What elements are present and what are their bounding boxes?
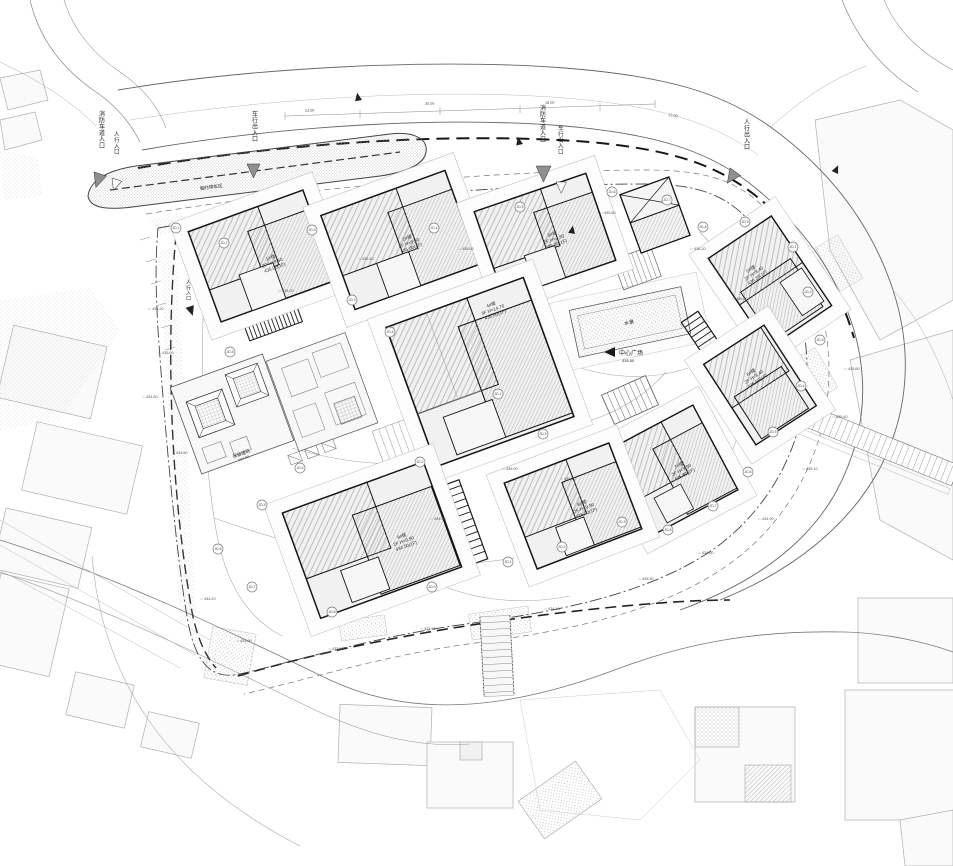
spot-elevation: 434.90	[762, 517, 774, 521]
dimension-text: 18.00	[545, 101, 555, 105]
annotation-code: JD-6	[744, 470, 751, 474]
spot-elevation: 435.40	[836, 415, 848, 419]
annotation-code: JD-4	[797, 384, 804, 388]
annotation-code: JD-6	[608, 190, 615, 194]
spot-elevation: 435.60	[462, 247, 474, 251]
plaza-elevation: 435.50	[622, 358, 635, 363]
annotation-code: JD-7	[709, 504, 716, 508]
entrance-label: 消防车道入口	[99, 110, 105, 150]
dimension-text: 24.00	[305, 109, 315, 113]
spot-elevation: 433.90	[424, 627, 436, 631]
annotation-code: JD-4	[386, 330, 393, 334]
annotation-code: JD-9	[428, 585, 435, 589]
spot-elevation: 434.60	[702, 551, 714, 555]
annotation-code: JD-6	[214, 547, 221, 551]
spot-elevation: 435.20	[282, 289, 294, 293]
annotation-code: JD-3	[308, 228, 315, 232]
annotation-code: JD-5	[769, 430, 776, 434]
annotation-code: JD-2	[558, 545, 565, 549]
annotation-code: JD-4	[296, 466, 303, 470]
annotation-code: JD-8	[328, 610, 335, 614]
spot-elevation: 435.10	[564, 477, 576, 481]
site-plan-drawing: 临时停车区 水景 中心广场 435.50	[0, 0, 953, 866]
annotation-code: JD-3	[816, 338, 823, 342]
site-plan-page: 临时停车区 水景 中心广场 435.50	[0, 0, 953, 866]
entrance-label: 车行出入口	[558, 124, 564, 156]
entrance-label: 人行出入口	[744, 119, 750, 151]
annotation-code: JD-1	[504, 560, 511, 564]
plaza-label: 中心广场	[619, 349, 643, 357]
building-gable-annex	[620, 177, 690, 253]
dimension-line	[285, 100, 655, 120]
spot-elevation: 434.00	[240, 639, 252, 643]
annotation-code: JD-8	[664, 528, 671, 532]
spot-elevation: 434.60	[176, 451, 188, 455]
entrance-label: 车行出入口	[252, 110, 258, 143]
annotation-code: JD-2	[220, 241, 227, 245]
entrance-label: 消防车道入口	[540, 104, 546, 144]
spot-elevation: 435.00	[162, 351, 174, 355]
spot-elevation: 433.80	[332, 647, 344, 651]
dimension-text: 30.00	[425, 102, 435, 106]
spot-elevation: 435.10	[806, 467, 818, 471]
spot-elevation: 435.20	[152, 307, 164, 311]
annotation-code: JD-8	[699, 225, 706, 229]
spot-elevation: 436.00	[736, 297, 748, 301]
spot-elevation: 435.40	[362, 257, 374, 261]
annotation-code: JD-4	[430, 226, 437, 230]
entrance-label: 人行入口	[114, 131, 120, 156]
annotation-code: JD-5	[258, 503, 265, 507]
dimension-text: 12.00	[668, 113, 678, 118]
annotation-code: JD-5	[516, 205, 523, 209]
annotation-code: JD-9	[539, 432, 546, 436]
annotation-code: JD-9	[741, 220, 748, 224]
spot-elevation: 434.90	[434, 517, 446, 521]
annotation-code: JD-1	[789, 245, 796, 249]
entrance-label: 人行入口	[186, 280, 191, 302]
annotation-code: JD-5	[226, 350, 233, 354]
annotation-code: JD-1	[494, 392, 501, 396]
annotation-code: JD-3	[348, 298, 355, 302]
spot-elevation: 435.80	[604, 211, 616, 215]
spot-elevation: 434.80	[146, 395, 158, 399]
spot-elevation: 434.30	[642, 577, 654, 581]
annotation-code: JD-1	[172, 226, 179, 230]
spot-elevation: 434.20	[204, 597, 216, 601]
side-pedestrian-arrow-icon	[186, 306, 196, 317]
spot-elevation: 436.20	[694, 247, 706, 251]
annotation-code: JD-7	[248, 585, 255, 589]
crosswalk	[480, 615, 514, 696]
annotation-code: JD-3	[618, 520, 625, 524]
dimension-texts: 24.0030.0018.0012.00	[305, 101, 678, 118]
annotation-code: JD-2	[804, 290, 811, 294]
spot-elevation: 435.60	[848, 367, 860, 371]
annotation-code: JD-2	[416, 460, 423, 464]
spot-elevation: 434.10	[548, 607, 560, 611]
annotation-code: JD-7	[663, 198, 670, 202]
spot-elevation: 435.00	[506, 467, 518, 471]
